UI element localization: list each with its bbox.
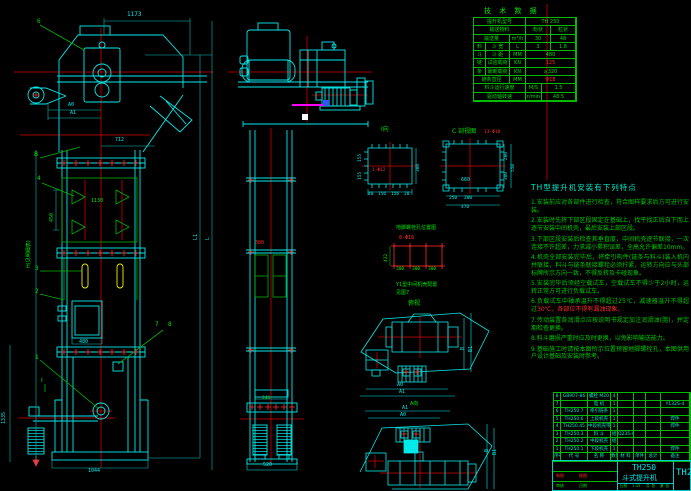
sb-dim-b: B xyxy=(485,449,490,452)
table-cell: MM xyxy=(510,51,526,59)
table-cell: TH250.7 xyxy=(561,408,588,416)
tech-data-table: 提升机型号TH 250输送物料粉状粒状输送量m³/h3048料斗 宽L31.8斗… xyxy=(473,17,577,102)
table-cell: 提升机型号 xyxy=(474,18,526,26)
table-cell: ≥320 xyxy=(526,68,576,76)
table-cell xyxy=(646,408,661,416)
table-cell: 电 机 xyxy=(588,401,611,409)
table-row: 链条直径MMΦ18 xyxy=(474,76,576,84)
table-cell: 焊件 xyxy=(661,446,690,454)
anchor-dim-300b: 300 xyxy=(412,268,420,273)
table-row: 输送量m³/h3048 xyxy=(474,35,576,43)
sb-dim-a0: A0 xyxy=(400,413,406,418)
table-cell: 粒状 xyxy=(551,26,576,34)
note-item: 4.机壳全部安装完毕后，将牵引构件(链条与料斗)装入机内并联接，料斗与链条联接螺… xyxy=(531,254,689,278)
drawing-model-right: TH250 xyxy=(676,469,691,478)
table-cell: 3 xyxy=(526,43,551,51)
st-dim-a1: A1 xyxy=(399,390,405,395)
table-cell: 6 xyxy=(554,408,561,416)
table-row: 条破断载荷KN≥320 xyxy=(474,68,576,76)
detail-I-dim-300: 300 xyxy=(417,164,422,172)
table-row: 3TH250.3料 斗组Q235-A xyxy=(554,431,690,439)
table-cell: 焊件 xyxy=(661,416,690,424)
table-cell: 7 xyxy=(554,401,561,409)
detail-C-dim-200r: 200 xyxy=(505,152,510,160)
table-cell xyxy=(634,401,646,409)
table-cell: 48 xyxy=(551,35,576,43)
detail-I-dim-155a: 155 xyxy=(359,154,364,162)
detail-I-dim-156b: 156 xyxy=(391,193,399,198)
notes-title: TH型提升机安装有下列特点 xyxy=(531,182,689,193)
scale-label: 比例 xyxy=(620,485,627,489)
table-cell xyxy=(646,423,661,431)
table-cell xyxy=(618,438,634,446)
dim-a1: A1 xyxy=(70,111,76,116)
detail-C-dim-250: 250 xyxy=(449,197,457,202)
notes-list: 1.安装前应对各部件进行检查，符合图样要求后方可进行安装。2.安装时先将下部区段… xyxy=(531,199,689,361)
st-dim-b: B xyxy=(461,347,466,350)
front-view-dims xyxy=(10,18,212,470)
table-cell: 料斗运行速度 xyxy=(474,84,526,92)
table-cell: 1 xyxy=(611,416,618,424)
detail-I-dim-40: 40 xyxy=(368,193,373,198)
table-cell: 牵引链条 xyxy=(588,408,611,416)
table-row: 1TH250.1下段机壳1焊件 xyxy=(554,446,690,454)
balloon-1: 1 xyxy=(35,355,39,361)
divider xyxy=(618,483,674,484)
detail-C-dim-550: 550 xyxy=(512,164,517,172)
table-cell: 4 xyxy=(611,393,618,401)
table-cell: 1 xyxy=(611,423,618,431)
table-row: 斗斗 距MM480 xyxy=(474,51,576,59)
table-cell: 1 xyxy=(554,446,561,454)
table-cell: 链条直径 xyxy=(474,76,510,84)
table-cell: 中段机壳带门 xyxy=(588,423,611,431)
table-cell: 试验载荷 xyxy=(486,59,510,67)
cad-drawing-sheet: { "colors":{"bg":"#000000","line_cyan":"… xyxy=(0,0,691,491)
table-cell xyxy=(661,431,690,439)
balloon-8: 8 xyxy=(168,322,172,328)
table-cell xyxy=(646,446,661,454)
table-cell: 条 xyxy=(474,68,486,76)
table-cell xyxy=(646,416,661,424)
balloon-4: 4 xyxy=(37,176,41,182)
table-cell xyxy=(634,431,646,439)
table-row: 2TH250.2中段机壳组 xyxy=(554,438,690,446)
dim-1044: 1044 xyxy=(88,469,100,474)
table-cell: m³/h xyxy=(510,35,526,43)
table-cell: M/S xyxy=(526,84,542,92)
table-cell: 螺栓 M20 xyxy=(588,393,611,401)
table-cell xyxy=(646,401,661,409)
platform-view-top xyxy=(360,313,489,396)
table-cell xyxy=(634,416,646,424)
sb-view-label: A向 xyxy=(410,402,418,407)
dim-a0: A0 xyxy=(68,103,74,108)
sb-dim-b1: B1 xyxy=(493,449,498,455)
table-cell: 48.5 xyxy=(542,93,576,101)
title-block-center: TH250 斗式提升机 比例 1:25 共 张 第 张 xyxy=(617,461,673,491)
table-cell: 斗 宽 xyxy=(486,43,510,51)
table-row: 链试验载荷KN125 xyxy=(474,59,576,67)
table-cell: 480 xyxy=(526,51,576,59)
dim-L: L xyxy=(206,237,211,240)
table-cell: 中段机壳 xyxy=(588,438,611,446)
anchor-dim-300c: 300 xyxy=(428,268,436,273)
table-cell: 斗 xyxy=(474,51,486,59)
table-row: 5TH250.6上段机壳1焊件 xyxy=(554,416,690,424)
dim-712: 712 xyxy=(115,138,124,143)
table-cell: 上段机壳 xyxy=(588,416,611,424)
table-cell: TH250.3 xyxy=(561,431,588,439)
table-cell: L xyxy=(510,43,526,51)
tech-table-title: 技 术 数 据 xyxy=(484,8,540,15)
sig-shenhe: 审核 xyxy=(556,484,564,488)
front-view-linework xyxy=(28,26,207,460)
note-item: 9.基础施工时请按本图所示位置预留地脚螺栓孔，本图供用户设计基础及安装时参考。 xyxy=(531,346,689,362)
side-view-green xyxy=(255,255,286,297)
platform-view-bottom xyxy=(360,411,494,489)
anchor-sub1: Y1型中间机壳配置 xyxy=(396,283,437,288)
table-cell: 2 xyxy=(554,438,561,446)
note-item: 6.负载试车中轴承温升不得超过25℃，减速器温升不得超过30℃，各部位不得有漏油… xyxy=(531,298,689,314)
detail-C-dim-470: 470 xyxy=(461,206,469,211)
table-row: 料斗 宽L31.8 xyxy=(474,43,576,51)
table-row: 输送物料粉状粒状 xyxy=(474,26,576,34)
anchor-plan-marks xyxy=(391,243,445,269)
balloon-2: 2 xyxy=(35,289,39,295)
dim-520: 520 xyxy=(263,463,272,468)
table-cell: 焊件 xyxy=(661,423,690,431)
table-row: 6TH250.7牵引链条1 xyxy=(554,408,690,416)
balloon-3: 3 xyxy=(35,266,39,272)
table-cell: 125 xyxy=(526,59,576,67)
balloon-B: B xyxy=(34,152,38,158)
detail-C-dim-200b: 200 xyxy=(464,197,472,202)
table-cell: 驱动轴转速 xyxy=(474,93,526,101)
balloon-6: 6 xyxy=(37,19,41,25)
section-mark-I: Ⅰ xyxy=(41,378,43,384)
anchor-dim-300a: 300 xyxy=(396,268,404,273)
sig-divider xyxy=(553,471,617,472)
detail-I-dim-155b: 155 xyxy=(359,172,364,180)
table-cell xyxy=(661,438,690,446)
table-cell: 4 xyxy=(554,423,561,431)
table-cell: 输送量 xyxy=(474,35,510,43)
dim-380: 380 xyxy=(255,241,264,246)
table-cell: 粉状 xyxy=(526,26,551,34)
table-cell: 3 xyxy=(554,431,561,439)
table-row: 7电 机1Y132S-4 xyxy=(554,401,690,409)
sig-riqi: 日期 xyxy=(579,484,587,488)
table-cell: TH250.2 xyxy=(561,438,588,446)
side-view-linework xyxy=(238,23,373,470)
table-cell: MM xyxy=(510,76,526,84)
anchor-dim-432: 432 xyxy=(385,254,390,262)
table-cell: 1.8 xyxy=(551,43,576,51)
table-cell: 1 xyxy=(611,408,618,416)
table-cell xyxy=(618,446,634,454)
drawing-model: TH250 xyxy=(632,464,656,472)
table-row: 驱动轴转速r/min48.5 xyxy=(474,93,576,101)
table-row: 8GB907-86螺栓 M204 xyxy=(554,393,690,401)
table-cell: 斗 距 xyxy=(486,51,510,59)
dim-450: 450 xyxy=(50,213,55,222)
dim-480: 480 xyxy=(79,340,88,345)
table-cell: 5 xyxy=(554,416,561,424)
buckets-yellow xyxy=(82,264,123,288)
sb-dim-a1: A1 xyxy=(402,406,408,411)
title-block-right: TH250 xyxy=(673,461,691,491)
table-cell: GB907-86 xyxy=(561,393,588,401)
anchor-sub2: 见图7 xyxy=(396,291,409,296)
sig-miaotu: 描图 xyxy=(579,474,587,478)
table-cell: 链 xyxy=(474,59,486,67)
scale-value: 1:25 xyxy=(632,485,640,489)
sig-zhitu: 制图 xyxy=(556,474,564,478)
table-cell: 下段机壳 xyxy=(588,446,611,454)
detail-C-title: C 剖视图 xyxy=(452,129,476,135)
note-item: 1.安装前应对各部件进行检查，符合图样要求后方可进行安装。 xyxy=(531,199,689,215)
table-cell xyxy=(634,446,646,454)
sheet-total: 共 张 xyxy=(646,485,655,489)
dim-1335: 1335 xyxy=(2,412,7,424)
white-mark xyxy=(302,114,308,120)
dim-H: H(见明细表) xyxy=(27,240,32,268)
anchor-plan-grid xyxy=(394,246,442,266)
table-cell: 输送物料 xyxy=(474,26,526,34)
top-view-label: 俯视 xyxy=(408,301,420,307)
table-cell xyxy=(618,423,634,431)
table-cell xyxy=(646,431,661,439)
table-cell xyxy=(634,408,646,416)
table-cell xyxy=(618,416,634,424)
table-cell: 组 xyxy=(611,431,618,439)
table-row: 料斗运行速度M/S1.5 xyxy=(474,84,576,92)
table-cell: TH250.6 xyxy=(561,416,588,424)
table-cell xyxy=(618,393,634,401)
table-cell: 30 xyxy=(526,35,551,43)
detail-I-dim-156a: 156 xyxy=(378,193,386,198)
table-cell xyxy=(618,408,634,416)
installation-notes: TH型提升机安装有下列特点 1.安装前应对各部件进行检查，符合图样要求后方可进行… xyxy=(531,182,689,390)
table-cell: r/min xyxy=(526,93,542,101)
table-cell: KN xyxy=(510,59,526,67)
table-cell: 8 xyxy=(554,393,561,401)
st-dim-a0: A0 xyxy=(397,383,403,388)
detail-I-title: Ⅰ向 xyxy=(381,127,389,133)
dim-L1: L1 xyxy=(194,234,199,240)
note-item: 3.下部区段安装后检查其垂直度，中间机壳逐节联接，一次连接不许超差，力求减小累积… xyxy=(531,236,689,252)
sig-divider2 xyxy=(553,481,617,482)
dim-1173: 1173 xyxy=(127,12,141,18)
table-row: 4TH250.45中段机壳带门1焊件 xyxy=(554,423,690,431)
detail-I-hole: 1-Φ12 xyxy=(372,169,386,174)
note-item: 2.安装时先将下部区段固定在基础上，找平找正后自下而上逐节安装中间机壳，最后安装… xyxy=(531,217,689,233)
table-cell xyxy=(634,393,646,401)
dim-1130: 1130 xyxy=(91,199,103,204)
detail-C-hole: 13-Φ18 xyxy=(484,131,500,136)
note-item: 7.传动装置各润滑点应按说明书规定加注润滑油(脂)，并定期检查更换。 xyxy=(531,317,689,333)
table-cell: Q235-A xyxy=(618,431,634,439)
table-cell: TH 250 xyxy=(526,18,576,26)
note-item: 8.料斗磨损严重时应及时更换，以免影响输送能力。 xyxy=(531,335,689,343)
table-cell: 料 xyxy=(474,43,486,51)
table-cell xyxy=(646,438,661,446)
table-cell: TH250.1 xyxy=(561,446,588,454)
table-cell xyxy=(618,401,634,409)
table-cell: 1 xyxy=(611,446,618,454)
title-block: TH250 斗式提升机 比例 1:25 共 张 第 张 TH250 制图 描图 … xyxy=(552,460,691,491)
table-cell xyxy=(634,423,646,431)
table-cell: Y132S-4 xyxy=(661,401,690,409)
balloon-7: 7 xyxy=(155,322,159,328)
table-cell: 1.5 xyxy=(542,84,576,92)
table-cell: 1 xyxy=(611,401,618,409)
table-row: 提升机型号TH 250 xyxy=(474,18,576,26)
table-cell xyxy=(646,393,661,401)
detail-C-dim-300r: 300 xyxy=(505,172,510,180)
detail-C-dim-660: 660 xyxy=(461,178,470,183)
table-cell: 破断载荷 xyxy=(486,68,510,76)
drawing-name: 斗式提升机 xyxy=(622,475,657,482)
table-cell xyxy=(634,438,646,446)
table-cell xyxy=(661,408,690,416)
bom-table: 8GB907-86螺栓 M2047电 机1Y132S-46TH250.7牵引链条… xyxy=(553,392,691,462)
table-cell: KN xyxy=(510,68,526,76)
table-cell xyxy=(661,393,690,401)
table-cell: 料 斗 xyxy=(588,431,611,439)
blue-mark xyxy=(323,100,329,106)
anchor-plan-title: 地脚螺栓孔位置图 xyxy=(396,226,436,231)
st-dim-b1: B1 xyxy=(469,346,474,352)
sheet-no: 第 张 xyxy=(660,485,669,489)
detail-I-dim-20: 20 xyxy=(404,193,409,198)
note-item: 5.安装完毕后须经空载试车，空载试车不得少于2小时，运转正常方可进行负载试车。 xyxy=(531,280,689,296)
platform-bottom-marks xyxy=(401,431,419,437)
dim-144: 144 xyxy=(262,397,270,402)
anchor-hole-callout: 8-Φ18 xyxy=(399,236,414,241)
table-cell xyxy=(561,401,588,409)
table-cell: Φ18 xyxy=(526,76,576,84)
table-cell: 组 xyxy=(611,438,618,446)
table-cell: TH250.45 xyxy=(561,423,588,431)
